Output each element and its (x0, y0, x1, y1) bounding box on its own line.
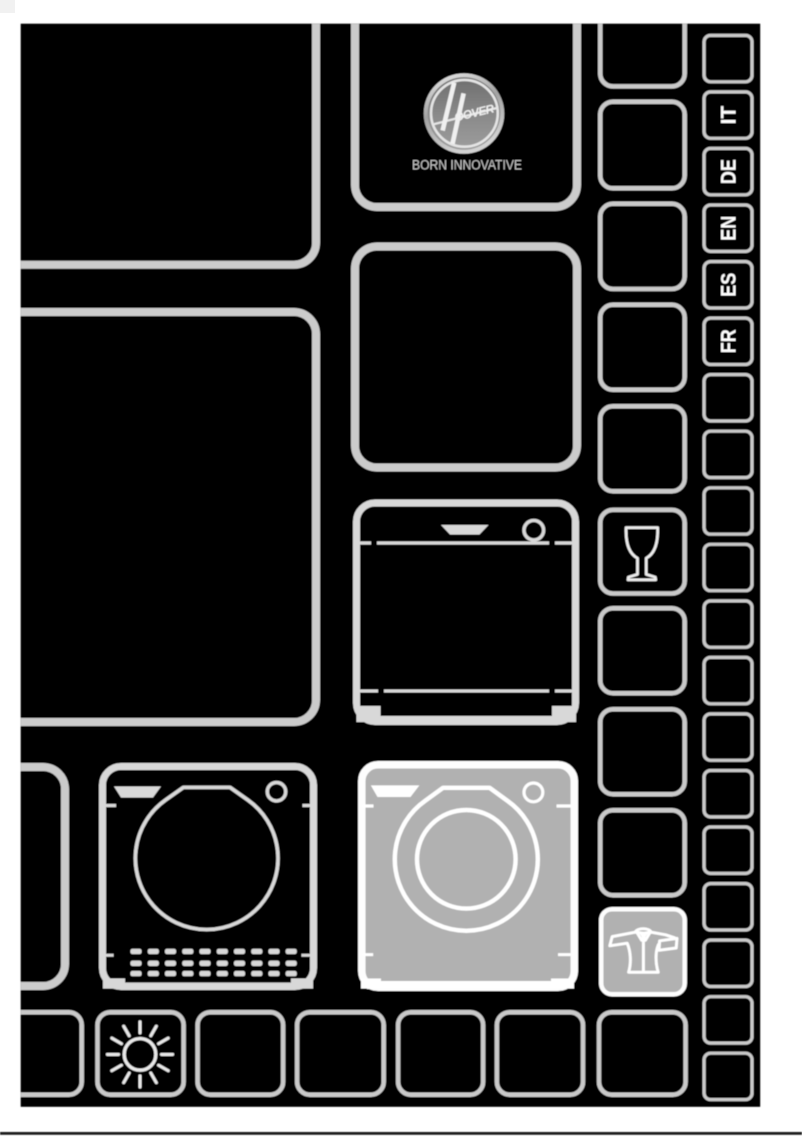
svg-text:ES: ES (717, 273, 741, 297)
svg-text:EN: EN (717, 216, 741, 241)
svg-text:IT: IT (717, 106, 741, 125)
svg-text:FR: FR (717, 329, 741, 353)
svg-text:BORN INNOVATIVE: BORN INNOVATIVE (412, 158, 522, 174)
svg-text:DE: DE (717, 159, 741, 184)
